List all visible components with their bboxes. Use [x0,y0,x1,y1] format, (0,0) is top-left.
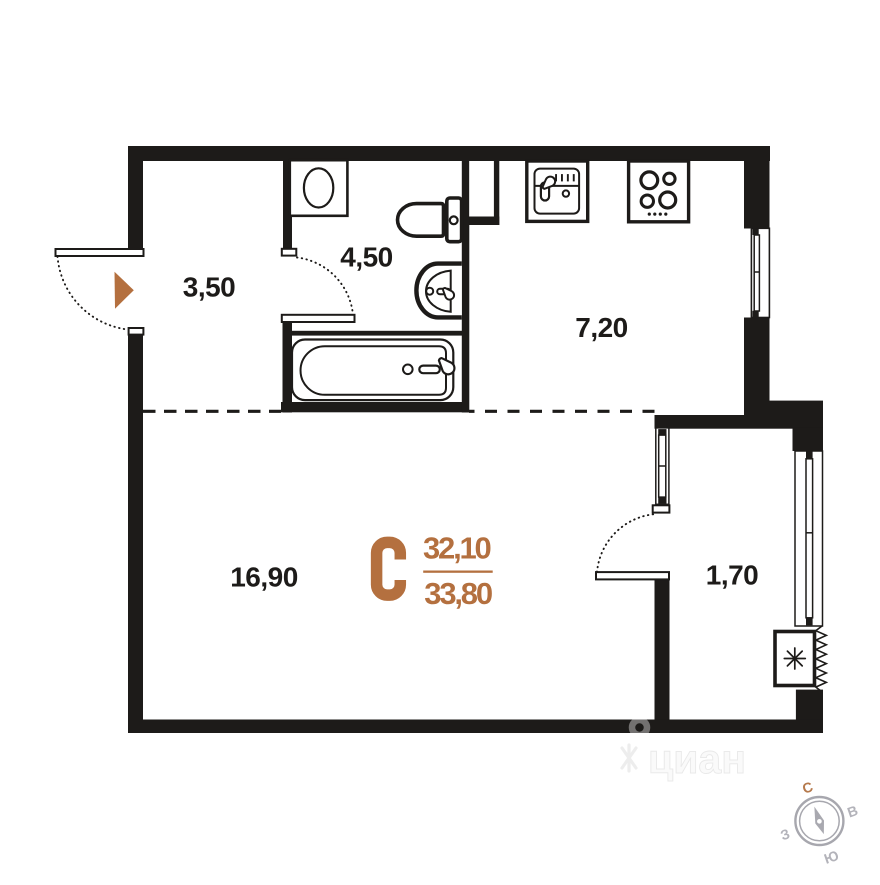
svg-text:32,10: 32,10 [423,531,491,566]
svg-text:1,70: 1,70 [706,560,759,591]
svg-text:7,20: 7,20 [575,312,628,343]
svg-text:циан: циан [648,736,746,782]
svg-text:33,80: 33,80 [424,576,492,611]
svg-text:16,90: 16,90 [230,562,298,593]
svg-text:3,50: 3,50 [183,272,236,303]
svg-text:4,50: 4,50 [340,242,393,273]
